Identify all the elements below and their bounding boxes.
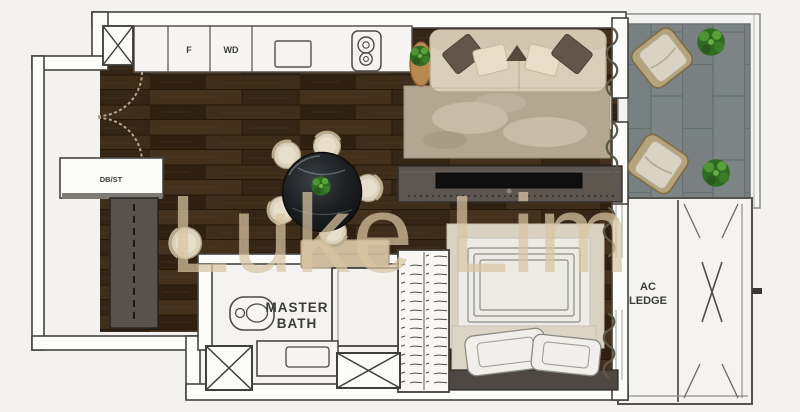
wall-left-outer: [32, 56, 44, 350]
master-bath-label-line1: MASTER: [266, 300, 329, 315]
db-storage-label: DB/ST: [100, 175, 123, 184]
shaft-x-icon: [337, 353, 400, 388]
fridge-label: F: [186, 45, 192, 55]
wall-bottom-left: [32, 336, 198, 350]
ac-ledge-label-line1: AC: [640, 281, 656, 293]
shaft-x-icon: [206, 346, 252, 390]
master-bath-label-line2: BATH: [277, 316, 318, 331]
balcony-plant: [702, 159, 730, 187]
washer-dryer-label: WD: [224, 45, 239, 55]
rug-mottle: [474, 93, 526, 113]
watermark-text: Luke Lim: [169, 173, 631, 296]
stove-burners-icon: [352, 31, 381, 71]
balcony-plant: [697, 28, 725, 56]
sofa: [430, 30, 606, 92]
rug-mottle: [423, 131, 467, 149]
ac-ledge: AC LEDGE: [618, 198, 762, 404]
side-table-plant: [410, 46, 430, 66]
sink-icon: [275, 41, 311, 67]
ac-ledge-tick: [752, 288, 762, 294]
ac-ledge-label-line2: LEDGE: [629, 295, 667, 307]
vanity-sink: [257, 341, 338, 376]
column-x-icon: [103, 26, 133, 65]
floor-plan-image: AC LEDGE F WD: [0, 0, 800, 412]
rug-mottle: [503, 117, 587, 147]
kitchen: F WD: [103, 26, 412, 72]
floorplan-page: AC LEDGE F WD: [0, 0, 800, 412]
bed-pillow: [530, 334, 601, 377]
